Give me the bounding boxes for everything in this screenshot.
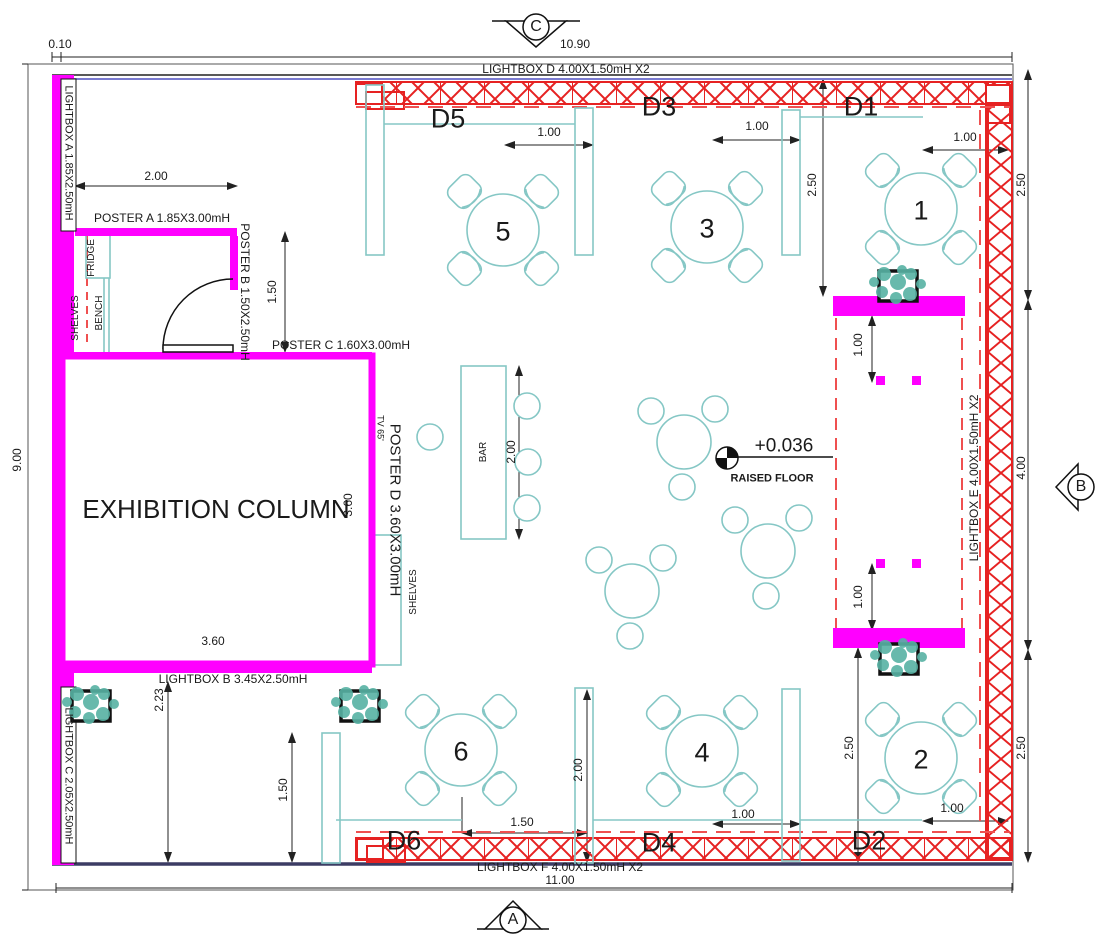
bar-label: BAR [479,442,489,463]
floor-plan-canvas [0,0,1100,942]
poster-d-label: POSTER D 3.60X3.00mH [388,424,403,597]
cocktail-tables [586,396,812,649]
table-2-number: 2 [913,747,928,774]
table-3-number: 3 [699,216,714,243]
dim-stand1-depth-outer: 2.50 [1015,173,1027,196]
section-marker-b: B [1076,479,1087,495]
lightbox-a-label: LIGHTBOX A 1.85X2.50mH [63,85,74,220]
dim-storage-height: 2.23 [153,688,165,711]
dim-stand2-depth: 2.50 [843,736,855,759]
dim-gap-top-1: 1.00 [537,126,560,138]
dim-poster-b-height: 1.50 [266,280,278,303]
exhibition-column-label: EXHIBITION COLUMN [82,496,349,522]
tv-label: TV 65' [376,415,385,441]
truss-right [986,82,1012,860]
level-value: +0.036 [755,437,814,456]
stand-d5-label: D5 [431,106,466,133]
fridge-label: FRIDGE [87,239,97,277]
table-4-number: 4 [694,740,709,767]
lightbox-c-label: LIGHTBOX C 2.05X2.50mH [63,708,74,845]
section-marker-a: A [508,912,519,928]
stand-d2-label: D2 [852,828,887,855]
door-swing [163,279,233,352]
level-label: RAISED FLOOR [730,474,813,485]
lightbox-b-label: LIGHTBOX B 3.45X2.50mH [159,673,308,685]
shelves-left-label: SHELVES [71,295,81,340]
lightbox-e-label: LIGHTBOX E 4.00X1.50mH X2 [968,395,980,562]
dim-column-width: 3.60 [201,635,224,647]
dim-stand6-gap: 1.50 [510,816,533,828]
lightbox-f-label: LIGHTBOX F 4.00X1.50mH X2 [477,861,643,873]
floor-plan: 0.10 10.90 LIGHTBOX D 4.00X1.50mH X2 9.0… [0,0,1100,942]
table-1-number: 1 [913,198,928,225]
dim-stand1-depth: 2.50 [806,173,818,196]
poster-a-label: POSTER A 1.85X3.00mH [94,212,230,224]
dim-overall-height: 9.00 [11,448,23,471]
dim-gap-top-2: 1.00 [745,120,768,132]
dim-lightbox-e-inset-top: 1.00 [852,333,864,356]
stand-d1-label: D1 [844,94,879,121]
table-5-number: 5 [495,219,510,246]
stand-d6-label: D6 [387,828,422,855]
dim-lightbox-e-length: 4.00 [1015,456,1027,479]
table-6-number: 6 [453,739,468,766]
shelves-right-label: SHELVES [409,569,419,614]
bench-label: BENCH [95,295,105,330]
stand-d4-label: D4 [642,830,677,857]
dim-column-gap-bottom: 2.00 [572,758,584,781]
dim-gap-bottom-2: 1.00 [940,802,963,814]
dim-overall-width: 10.90 [560,38,590,50]
dim-bar-length: 2.00 [505,440,517,463]
truss-bottom [356,838,1012,862]
dim-gap-top-3: 1.00 [953,131,976,143]
dim-overall-width-outer: 11.00 [545,874,574,886]
dim-wall-offset: 0.10 [48,38,71,50]
section-marker-c: C [530,19,542,35]
dim-gap-bottom-1: 1.00 [731,808,754,820]
lightbox-d-label: LIGHTBOX D 4.00X1.50mH X2 [482,63,649,75]
poster-c-label: POSTER C 1.60X3.00mH [272,339,410,351]
dim-storage-width: 1.50 [277,778,289,801]
dim-stand2-depth-outer: 2.50 [1015,736,1027,759]
dim-lightbox-e-inset-bottom: 1.00 [852,585,864,608]
stand-d3-label: D3 [642,94,677,121]
dim-column-height: 3.60 [342,493,354,516]
dim-poster-a-width: 2.00 [144,170,167,182]
poster-b-label: POSTER B 1.50X2.50mH [239,223,251,360]
